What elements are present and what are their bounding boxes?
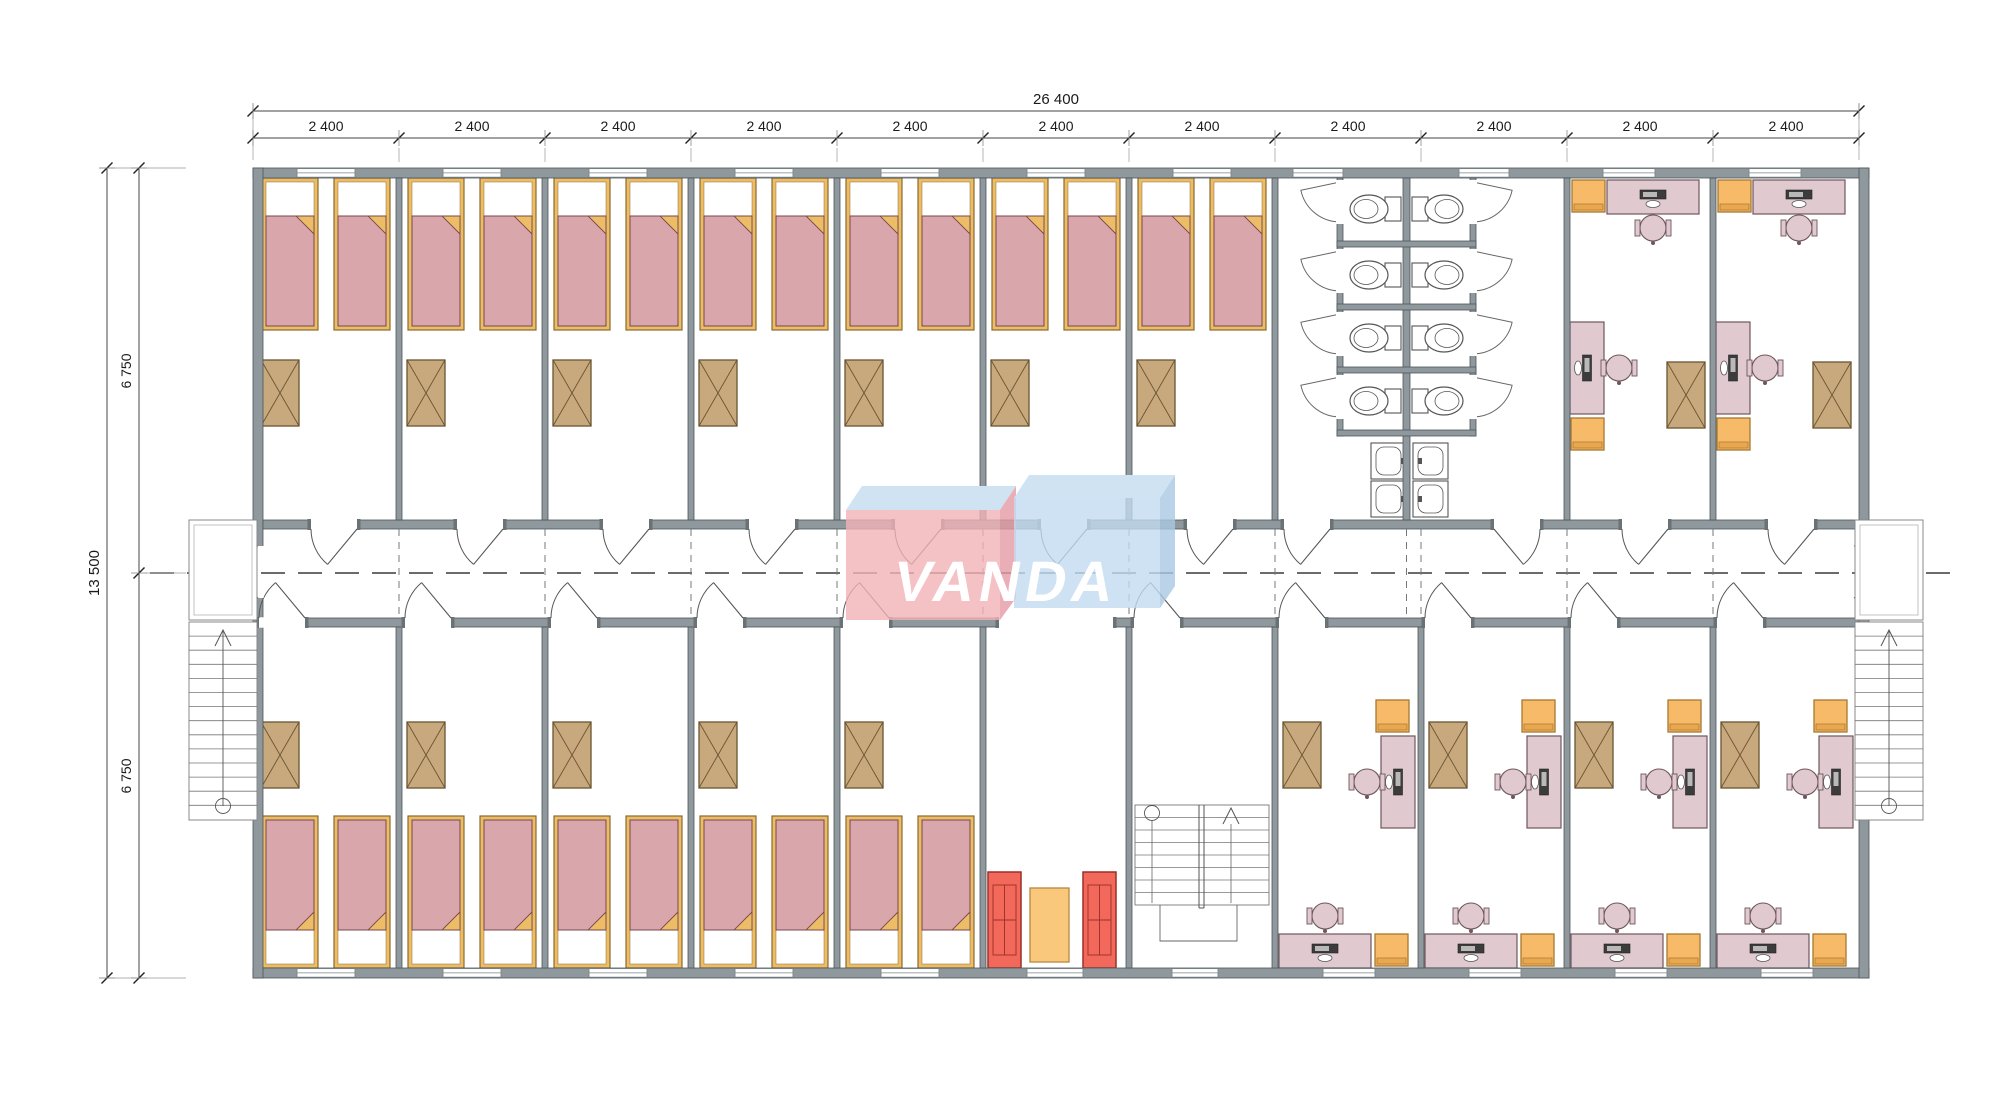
wall [542, 627, 548, 968]
office-top [1716, 180, 1851, 450]
office-chair [1453, 903, 1489, 933]
dimension-label: 2 400 [600, 118, 635, 134]
door-swing [1279, 583, 1296, 618]
bed-blanket [922, 216, 970, 326]
stair-landing [1855, 520, 1923, 620]
dimension-label: 6 750 [118, 758, 134, 793]
bed-blanket [338, 216, 386, 326]
toilet-bowl [1350, 324, 1388, 352]
mouse [1756, 955, 1770, 962]
bed [846, 178, 902, 330]
bedroom-top [991, 178, 1120, 426]
wall [834, 178, 840, 520]
desk [1425, 934, 1517, 968]
bedroom-bottom [407, 722, 536, 968]
dimension-label: 2 400 [308, 118, 343, 134]
tap [1418, 496, 1422, 502]
bed-blanket [338, 820, 386, 930]
dimension-label: 13 500 [86, 550, 103, 596]
desk [1607, 180, 1699, 214]
dimension-label: 26 400 [1033, 91, 1079, 108]
stall-door [1473, 182, 1512, 222]
bed-blanket [412, 820, 460, 930]
office-chair [1495, 769, 1531, 799]
wardrobe [1575, 722, 1613, 788]
bed [1064, 178, 1120, 330]
floor-plan-canvas: VANDA26 4002 4002 4002 4002 4002 4002 40… [0, 0, 2000, 1099]
floor-plan: VANDA26 4002 4002 4002 4002 4002 4002 40… [0, 0, 2000, 1099]
mouse [1824, 775, 1831, 789]
office-bottom [1279, 700, 1415, 968]
wall [1337, 304, 1476, 310]
bedroom-top [261, 178, 390, 426]
wall [1710, 178, 1716, 520]
bed-blanket [704, 216, 752, 326]
wall [980, 178, 986, 520]
bed [626, 816, 682, 968]
wardrobe [553, 722, 591, 788]
dimension-label: 2 400 [746, 118, 781, 134]
desk [1753, 180, 1845, 214]
mouse [1386, 775, 1393, 789]
wardrobe [1137, 360, 1175, 426]
office-chair [1349, 769, 1385, 799]
wall [1337, 367, 1476, 373]
wall [1126, 178, 1132, 520]
wall [1337, 241, 1476, 247]
wardrobe [699, 722, 737, 788]
lounge [988, 872, 1116, 968]
stall-door [1301, 251, 1340, 291]
toilet-bowl [1425, 195, 1463, 223]
dimension-label: 2 400 [454, 118, 489, 134]
door-swing [749, 529, 766, 564]
bed [1138, 178, 1194, 330]
wall [1337, 430, 1476, 436]
bedroom-bottom [699, 722, 828, 968]
door-swing [405, 583, 422, 618]
bedroom-top [1137, 178, 1266, 426]
mouse [1792, 201, 1806, 208]
mouse [1575, 361, 1582, 375]
dimension-label: 2 400 [1184, 118, 1219, 134]
visitor-chair [1522, 700, 1555, 732]
dimension-label: 2 400 [1768, 118, 1803, 134]
bedroom-bottom [845, 722, 974, 968]
door-swing [1622, 529, 1639, 564]
door-swing [697, 583, 714, 618]
desk [1673, 736, 1707, 828]
bed [334, 816, 390, 968]
dimension-label: 6 750 [118, 353, 134, 388]
office-bottom [1717, 700, 1853, 968]
wardrobe [407, 360, 445, 426]
wall [1403, 178, 1410, 520]
bed-blanket [484, 820, 532, 930]
visitor-chair [1376, 700, 1409, 732]
visitor-chair [1667, 934, 1700, 966]
stall-door [1301, 314, 1340, 354]
wall [396, 178, 402, 520]
office-chair [1599, 903, 1635, 933]
door-swing [1717, 583, 1734, 618]
desk [1381, 736, 1415, 828]
bedroom-bottom [553, 722, 682, 968]
bed [772, 178, 828, 330]
visitor-chair [1571, 418, 1604, 450]
bed [700, 816, 756, 968]
wall [1126, 627, 1132, 968]
visitor-chair [1521, 934, 1554, 966]
door-swing [1571, 583, 1588, 618]
visitor-chair [1718, 180, 1751, 212]
office-chair [1601, 355, 1637, 385]
office-chair [1641, 769, 1677, 799]
bed-blanket [558, 216, 606, 326]
door-swing [1523, 529, 1540, 564]
desk [1527, 736, 1561, 828]
bed [408, 178, 464, 330]
bed [992, 178, 1048, 330]
dimension-label: 2 400 [1038, 118, 1073, 134]
visitor-chair [1813, 934, 1846, 966]
bed-blanket [266, 820, 314, 930]
desk [1716, 322, 1750, 414]
door-swing [1768, 529, 1785, 564]
bed [408, 816, 464, 968]
bed-blanket [412, 216, 460, 326]
office-bottom [1425, 700, 1561, 968]
door-swing [1284, 529, 1301, 564]
bedroom-bottom [261, 722, 390, 968]
wardrobe [1429, 722, 1467, 788]
wardrobe [1813, 362, 1851, 428]
wardrobe [1283, 722, 1321, 788]
external-staircase [189, 520, 257, 820]
logo-block-top [1014, 475, 1175, 498]
toilet-bowl [1350, 387, 1388, 415]
bed [554, 816, 610, 968]
dimension-label: 2 400 [1476, 118, 1511, 134]
external-staircase [1855, 520, 1923, 820]
bed [262, 816, 318, 968]
wardrobe [1667, 362, 1705, 428]
door-swing [603, 529, 620, 564]
logo-block-blue-side [1160, 475, 1175, 608]
sofa [1083, 872, 1116, 968]
bed-blanket [996, 216, 1044, 326]
office-chair [1745, 903, 1781, 933]
bed-blanket [922, 820, 970, 930]
bed [700, 178, 756, 330]
bed-blanket [704, 820, 752, 930]
stall-door [1473, 377, 1512, 417]
stall-door [1473, 314, 1512, 354]
toilet-bowl [1425, 387, 1463, 415]
bed [262, 178, 318, 330]
stall-door [1301, 182, 1340, 222]
office-chair [1787, 769, 1823, 799]
wall [542, 178, 548, 520]
toilet-bowl [1350, 261, 1388, 289]
wall [688, 627, 694, 968]
desk [1279, 934, 1371, 968]
wardrobe [553, 360, 591, 426]
desk [1819, 736, 1853, 828]
stair-landing [189, 520, 257, 620]
wardrobe [407, 722, 445, 788]
logo-block-top [846, 486, 1016, 510]
visitor-chair [1668, 700, 1701, 732]
dimension-label: 2 400 [1622, 118, 1657, 134]
bed [554, 178, 610, 330]
wall [1564, 178, 1570, 520]
wall [1272, 178, 1278, 520]
internal-staircase [1135, 805, 1269, 941]
logo-text: VANDA [889, 550, 1124, 614]
wall [1564, 627, 1570, 968]
desk [1717, 934, 1809, 968]
wardrobe [261, 722, 299, 788]
wall [1418, 627, 1424, 968]
wall [1272, 627, 1278, 968]
office-chair [1635, 215, 1671, 245]
mouse [1678, 775, 1685, 789]
bed [480, 816, 536, 968]
stall-door [1473, 251, 1512, 291]
visitor-chair [1375, 934, 1408, 966]
bed-blanket [850, 216, 898, 326]
wardrobe [845, 722, 883, 788]
stall-door [1301, 377, 1340, 417]
office-chair [1747, 355, 1783, 385]
wardrobe [1721, 722, 1759, 788]
bed-blanket [484, 216, 532, 326]
wardrobe [991, 360, 1029, 426]
wardrobe [845, 360, 883, 426]
bedroom-top [553, 178, 682, 426]
bed [480, 178, 536, 330]
toilet-bowl [1425, 261, 1463, 289]
bedroom-top [699, 178, 828, 426]
desk [1570, 322, 1604, 414]
tap [1418, 458, 1422, 464]
stair-landing [1160, 905, 1237, 941]
door-swing [311, 529, 328, 564]
bed-blanket [776, 820, 824, 930]
toilet-bowl [1350, 195, 1388, 223]
dimension-label: 2 400 [1330, 118, 1365, 134]
door-swing [551, 583, 568, 618]
bed-blanket [558, 820, 606, 930]
door-swing [1425, 583, 1442, 618]
wall [980, 627, 986, 968]
bed-blanket [850, 820, 898, 930]
sofa [988, 872, 1021, 968]
mouse [1464, 955, 1478, 962]
bed [918, 178, 974, 330]
wall [396, 627, 402, 968]
bed-blanket [630, 216, 678, 326]
wardrobe [699, 360, 737, 426]
office-chair [1307, 903, 1343, 933]
visitor-chair [1717, 418, 1750, 450]
visitor-chair [1572, 180, 1605, 212]
bed [1210, 178, 1266, 330]
coffee-table [1030, 888, 1069, 962]
wall [1710, 627, 1716, 968]
office-bottom [1571, 700, 1707, 968]
mouse [1646, 201, 1660, 208]
door-swing [1187, 529, 1204, 564]
desk [1571, 934, 1663, 968]
bedroom-top [845, 178, 974, 426]
office-chair [1781, 215, 1817, 245]
logo: VANDA [846, 475, 1175, 620]
bedroom-top [407, 178, 536, 426]
mouse [1318, 955, 1332, 962]
mouse [1532, 775, 1539, 789]
bed-blanket [1214, 216, 1262, 326]
bed-blanket [776, 216, 824, 326]
mouse [1721, 361, 1728, 375]
bed-blanket [1142, 216, 1190, 326]
bed [918, 816, 974, 968]
wall [834, 627, 840, 968]
bed [772, 816, 828, 968]
wardrobe [261, 360, 299, 426]
mouse [1610, 955, 1624, 962]
door-swing [457, 529, 474, 564]
bed [334, 178, 390, 330]
bed-blanket [1068, 216, 1116, 326]
wall [688, 178, 694, 520]
bed [846, 816, 902, 968]
visitor-chair [1814, 700, 1847, 732]
dimension-label: 2 400 [892, 118, 927, 134]
office-top [1570, 180, 1705, 450]
bed [626, 178, 682, 330]
bed-blanket [266, 216, 314, 326]
bed-blanket [630, 820, 678, 930]
toilet-bowl [1425, 324, 1463, 352]
